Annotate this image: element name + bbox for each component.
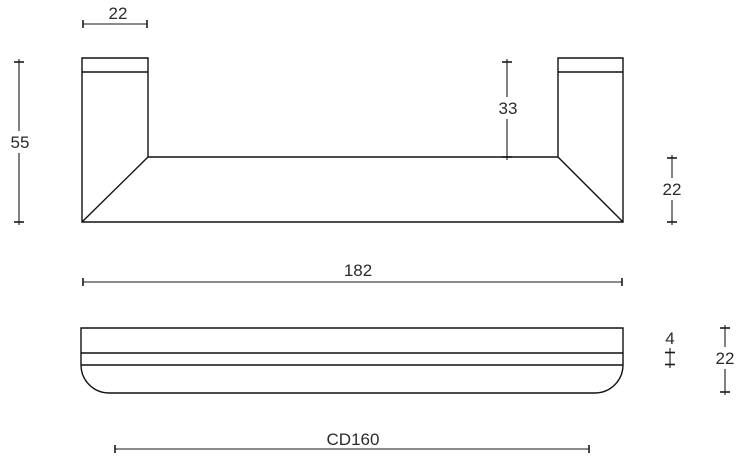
dim-centre-distance: CD160 [115, 430, 589, 453]
right-chamfer-edge [558, 157, 623, 222]
dim-bar-depth: 22 [660, 155, 684, 225]
handle-plan-outline [81, 328, 623, 393]
dim-edge-step-label: 4 [665, 329, 674, 348]
front-view [82, 58, 623, 222]
handle-front-outline [82, 58, 623, 222]
dim-overall-length: 182 [83, 261, 622, 286]
dim-post-inner-height: 33 [496, 59, 520, 160]
dim-bar-depth-label: 22 [663, 180, 682, 199]
dim-bar-thickness-label: 22 [716, 349, 735, 368]
dim-edge-step: 4 [665, 329, 675, 368]
dim-post-width: 22 [83, 4, 147, 28]
top-view [81, 328, 623, 393]
dim-bar-thickness: 22 [713, 325, 737, 395]
dim-centre-distance-label: CD160 [327, 430, 380, 449]
dim-post-width-label: 22 [109, 4, 128, 23]
dim-overall-height-label: 55 [11, 133, 30, 152]
left-chamfer-edge [82, 157, 148, 222]
dim-overall-length-label: 182 [344, 261, 372, 280]
drawing-canvas: 22 55 33 22 [0, 0, 740, 459]
technical-drawing: 22 55 33 22 [0, 0, 740, 459]
dim-post-inner-height-label: 33 [499, 99, 518, 118]
dim-overall-height: 55 [8, 59, 32, 225]
